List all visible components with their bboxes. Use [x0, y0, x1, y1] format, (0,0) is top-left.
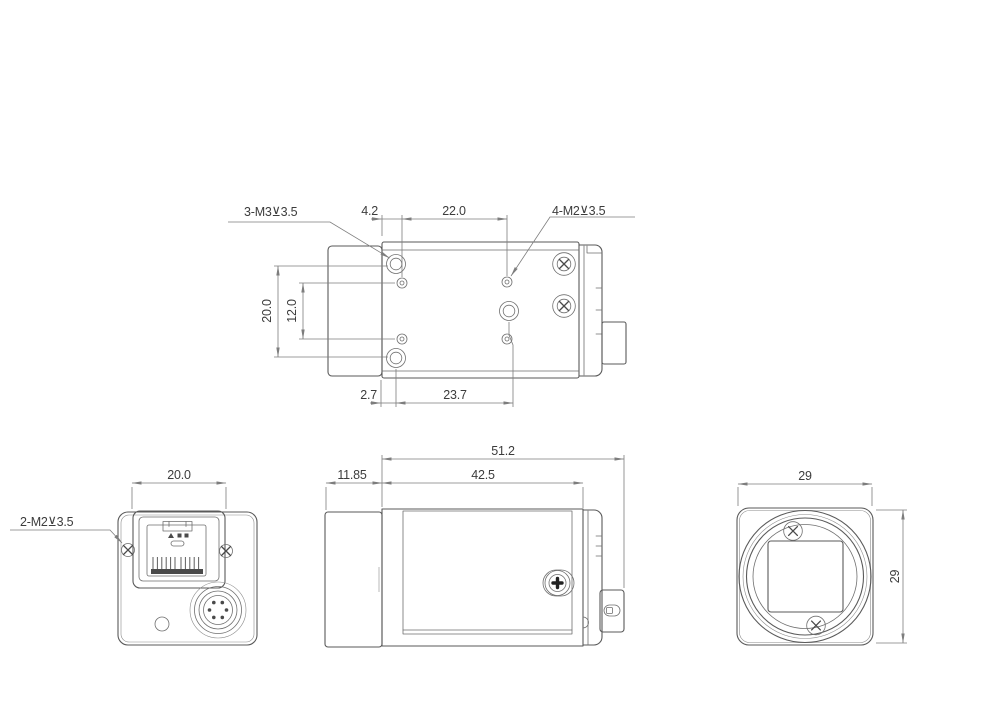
dim-42-5: 42.5	[382, 468, 583, 508]
thread-callout-m3: 3-M3⊻3.5	[244, 205, 298, 219]
rj45-pins	[153, 557, 199, 570]
dim-11-85: 11.85	[326, 468, 382, 510]
cap-screws	[553, 253, 576, 318]
side-connector-block	[600, 590, 624, 632]
svg-text:23.7: 23.7	[443, 388, 467, 402]
dim-29-height: 29	[876, 510, 907, 643]
top-view-lens-section	[328, 246, 382, 376]
svg-text:4.2: 4.2	[361, 204, 378, 218]
svg-text:12.0: 12.0	[285, 299, 299, 323]
m3-mount-holes	[387, 255, 519, 368]
dim-rear-20-0: 20.0	[132, 468, 226, 509]
leader-line-m3	[228, 222, 390, 258]
side-body-panel	[403, 511, 572, 634]
svg-text:29: 29	[888, 570, 902, 584]
top-view-rear-cap-detail	[584, 246, 602, 375]
thread-callout-m2: 4-M2⊻3.5	[552, 204, 606, 218]
lens-mount	[739, 511, 871, 643]
svg-text:20.0: 20.0	[260, 299, 274, 323]
dim-22-0: 22.0	[402, 204, 507, 276]
leader-line-m2	[511, 217, 635, 276]
dim-29-width: 29	[738, 469, 872, 506]
front-body-inner	[740, 511, 871, 643]
top-view-connector-block	[602, 322, 626, 364]
dim-20-0: 20.0	[260, 266, 388, 357]
sensor-window	[768, 541, 843, 612]
front-view: 29 29	[737, 469, 907, 645]
dim-23-7: 23.7	[396, 322, 513, 407]
svg-text:29: 29	[798, 469, 812, 483]
top-view-body	[382, 242, 579, 378]
m2-mount-holes	[397, 277, 512, 344]
side-view: 51.2 11.85 42.5	[325, 444, 624, 647]
top-view: 3-M3⊻3.5 4-M2⊻3.5 4.2 22.0 20.0 12.0	[228, 204, 635, 407]
rj45-connector	[147, 522, 206, 577]
svg-text:2.7: 2.7	[360, 388, 377, 402]
svg-text:11.85: 11.85	[337, 468, 367, 482]
led-indicator	[155, 617, 169, 631]
power-io-connector	[190, 582, 246, 638]
top-view-body-inner-lines	[382, 250, 579, 371]
side-rear-cap	[583, 510, 602, 645]
side-lens-barrel	[325, 512, 382, 647]
front-screw-top	[784, 522, 803, 541]
svg-text:22.0: 22.0	[442, 204, 466, 218]
svg-text:20.0: 20.0	[167, 468, 191, 482]
svg-text:51.2: 51.2	[491, 444, 515, 458]
dim-12-0: 12.0	[285, 283, 395, 339]
thread-callout-rear-m2: 2-M2⊻3.5	[20, 515, 74, 529]
front-body	[737, 508, 873, 645]
bezel-screw-right	[220, 545, 233, 558]
svg-text:42.5: 42.5	[471, 468, 495, 482]
top-view-rear-cap	[579, 245, 602, 376]
side-screw	[543, 570, 574, 596]
camera-dimensional-drawing: 3-M3⊻3.5 4-M2⊻3.5 4.2 22.0 20.0 12.0	[0, 0, 1000, 707]
drawing-canvas: 3-M3⊻3.5 4-M2⊻3.5 4.2 22.0 20.0 12.0	[0, 0, 1000, 707]
pin1-mark	[168, 533, 174, 538]
side-body	[382, 509, 583, 646]
leader-line-rear-m2	[10, 530, 122, 543]
dim-2-7: 2.7	[360, 369, 396, 407]
rear-view: 20.0 2-M2⊻3.5	[10, 468, 257, 645]
